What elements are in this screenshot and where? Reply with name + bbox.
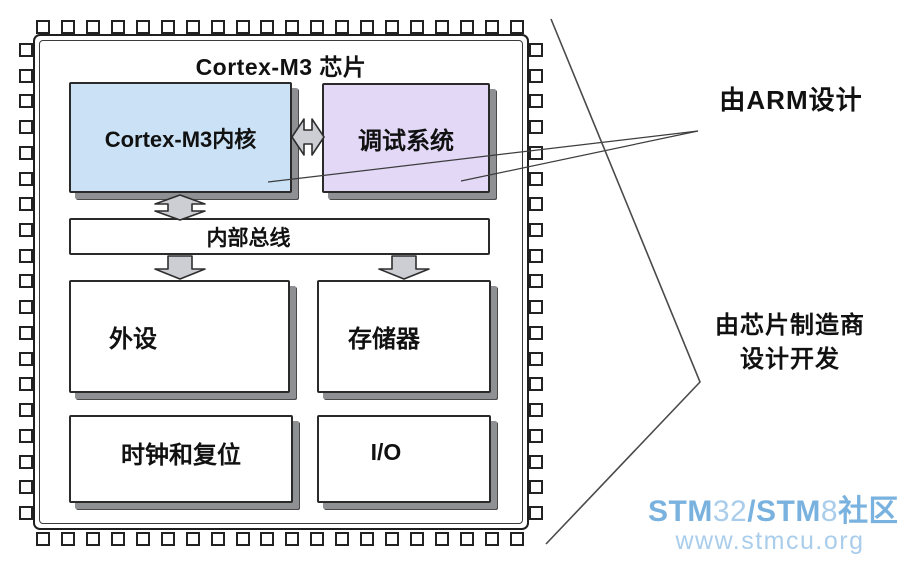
- chip-pin: [310, 20, 324, 34]
- chip-pin: [19, 326, 33, 340]
- chip-pin: [186, 532, 200, 546]
- chip-pin: [211, 532, 225, 546]
- block-debug-system: 调试系统: [322, 83, 490, 193]
- chip-title: Cortex-M3 芯片: [35, 48, 527, 82]
- chip-pin: [19, 43, 33, 57]
- annotation-vendor-design-line1: 由芯片制造商: [695, 309, 885, 343]
- block-clock-and-reset: 时钟和复位: [69, 415, 293, 503]
- block-io: I/O: [317, 415, 491, 503]
- chip-pin: [335, 20, 349, 34]
- chip-pin: [529, 249, 543, 263]
- chip-pin: [529, 120, 543, 134]
- block-peripherals-label: 外设: [109, 319, 157, 354]
- chip-pin: [360, 532, 374, 546]
- chip-pin: [260, 532, 274, 546]
- chip-pin: [510, 20, 524, 34]
- chip-pin: [529, 403, 543, 417]
- chip-pin: [161, 20, 175, 34]
- watermark: STM32/STM8社区 www.stmcu.org: [648, 496, 892, 554]
- chip-pin: [529, 274, 543, 288]
- chip-pin: [19, 377, 33, 391]
- block-memory: 存储器: [317, 280, 491, 393]
- annotation-arm-design: 由ARM设计: [703, 80, 879, 117]
- chip-pin: [529, 69, 543, 83]
- chip-pin: [19, 172, 33, 186]
- chip-pin: [211, 20, 225, 34]
- chip-pin: [460, 532, 474, 546]
- chip-pin: [19, 94, 33, 108]
- chip-pin: [161, 532, 175, 546]
- chip-pin: [410, 532, 424, 546]
- block-debug-system-label: 调试系统: [358, 121, 454, 156]
- chip-pin: [19, 249, 33, 263]
- chip-pin: [529, 455, 543, 469]
- chip-pin: [529, 506, 543, 520]
- chip-pin: [529, 352, 543, 366]
- block-internal-bus-label: 内部总线: [207, 222, 291, 252]
- chip-pin: [285, 20, 299, 34]
- chip-pin: [529, 146, 543, 160]
- chip-pin: [111, 20, 125, 34]
- block-peripherals: 外设: [69, 280, 290, 393]
- chip-pin: [485, 20, 499, 34]
- chip-pin: [529, 94, 543, 108]
- chip-pin: [186, 20, 200, 34]
- chip-pin: [335, 532, 349, 546]
- chip-pin: [260, 20, 274, 34]
- chip-pin: [19, 274, 33, 288]
- block-memory-label: 存储器: [348, 319, 420, 354]
- annotation-vendor-design: 由芯片制造商 设计开发: [695, 309, 885, 377]
- chip-pin: [529, 377, 543, 391]
- watermark-community-line: STM32/STM8社区: [648, 496, 892, 528]
- chip-pin: [19, 120, 33, 134]
- vendor-brace-lines: [546, 19, 700, 544]
- chip-pin: [510, 532, 524, 546]
- chip-pin: [285, 532, 299, 546]
- chip-pin: [529, 172, 543, 186]
- chip-pin: [410, 20, 424, 34]
- chip-pin: [19, 223, 33, 237]
- chip-pin: [529, 223, 543, 237]
- chip-pin: [19, 403, 33, 417]
- watermark-part: 32: [713, 495, 747, 528]
- watermark-part: 社区: [838, 495, 897, 528]
- chip-pin: [435, 20, 449, 34]
- annotation-vendor-design-line2: 设计开发: [695, 343, 885, 377]
- chip-pin: [385, 20, 399, 34]
- chip-pin: [435, 532, 449, 546]
- chip-pin: [136, 20, 150, 34]
- chip-pin: [460, 20, 474, 34]
- chip-pin: [61, 20, 75, 34]
- chip-pins-top: [36, 20, 524, 34]
- chip-pin: [19, 455, 33, 469]
- diagram-canvas: Cortex-M3 芯片 Cortex-M3内核 调试系统 内部总线 外设 存储…: [0, 0, 897, 568]
- chip-pin: [86, 20, 100, 34]
- chip-pin: [236, 20, 250, 34]
- chip-pin: [310, 532, 324, 546]
- chip-pin: [529, 300, 543, 314]
- chip-pin: [19, 197, 33, 211]
- chip-pin: [529, 480, 543, 494]
- chip-pin: [19, 300, 33, 314]
- chip-pins-left: [19, 43, 33, 520]
- chip-pin: [485, 532, 499, 546]
- chip-pin: [385, 532, 399, 546]
- chip-pin: [61, 532, 75, 546]
- chip-pins-bottom: [36, 532, 524, 546]
- block-cortex-m3-core: Cortex-M3内核: [69, 82, 292, 193]
- block-clock-and-reset-label: 时钟和复位: [121, 435, 241, 470]
- chip-pin: [529, 429, 543, 443]
- chip-pin: [529, 197, 543, 211]
- watermark-part: STM: [648, 495, 713, 528]
- watermark-url: www.stmcu.org: [648, 528, 892, 554]
- chip-pin: [360, 20, 374, 34]
- chip-pin: [529, 326, 543, 340]
- chip-pin: [19, 506, 33, 520]
- block-io-label: I/O: [371, 439, 402, 466]
- chip-pin: [19, 480, 33, 494]
- chip-pin: [236, 532, 250, 546]
- chip-pin: [36, 20, 50, 34]
- watermark-part: 8: [821, 495, 838, 528]
- chip-pins-right: [529, 43, 543, 520]
- chip-pin: [19, 69, 33, 83]
- chip-pin: [529, 43, 543, 57]
- block-cortex-m3-core-label: Cortex-M3内核: [105, 122, 257, 154]
- chip-pin: [36, 532, 50, 546]
- watermark-part: /STM: [747, 495, 821, 528]
- chip-pin: [19, 146, 33, 160]
- chip-pin: [111, 532, 125, 546]
- chip-pin: [86, 532, 100, 546]
- block-internal-bus: 内部总线: [69, 218, 490, 255]
- chip-pin: [136, 532, 150, 546]
- chip-pin: [19, 429, 33, 443]
- chip-pin: [19, 352, 33, 366]
